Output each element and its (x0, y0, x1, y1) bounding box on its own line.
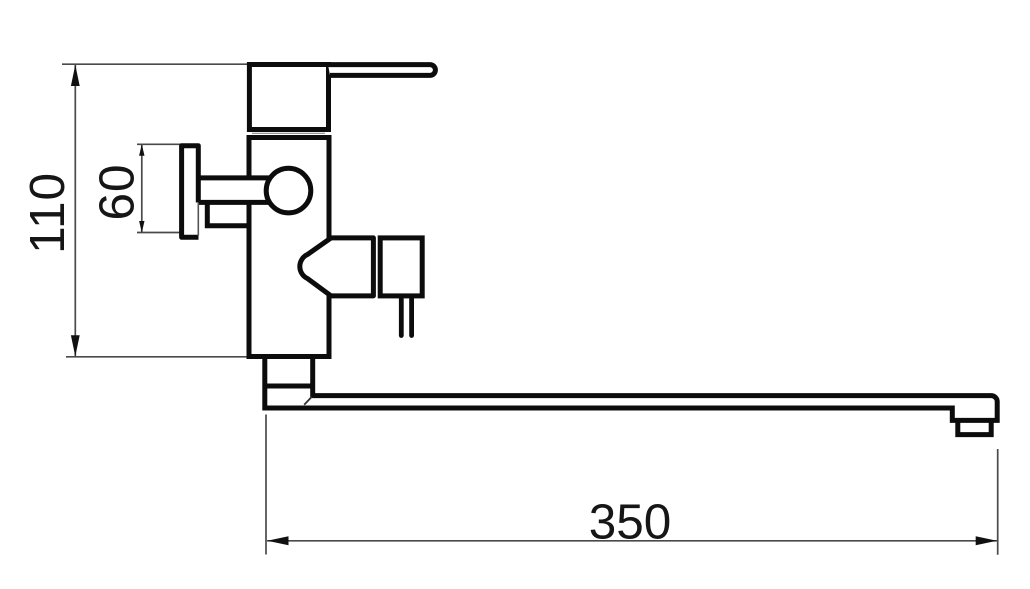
svg-text:60: 60 (89, 163, 144, 220)
svg-text:350: 350 (589, 495, 672, 550)
svg-text:110: 110 (20, 172, 75, 254)
